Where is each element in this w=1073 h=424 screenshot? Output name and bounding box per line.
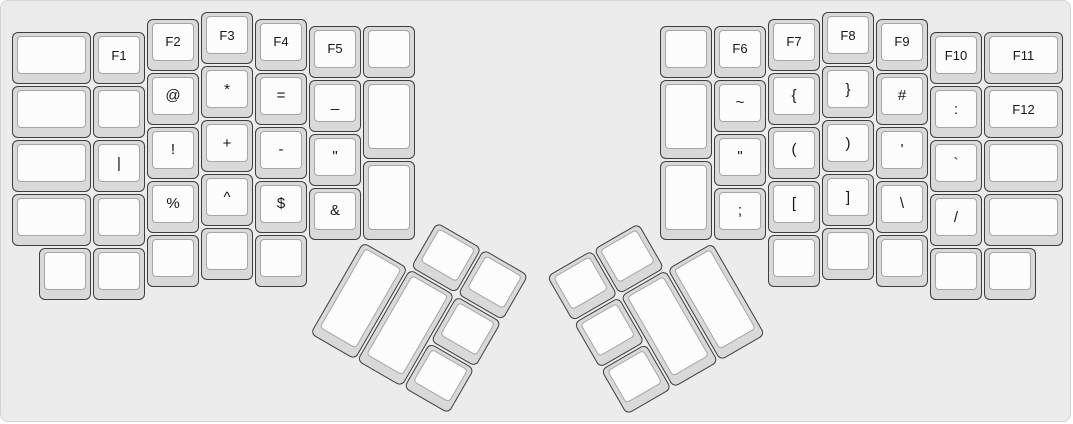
key-blank[interactable] bbox=[93, 248, 145, 300]
key-label: F11 bbox=[1013, 49, 1034, 62]
key-f1[interactable]: F1 bbox=[93, 32, 145, 84]
key-at[interactable]: @ bbox=[147, 73, 199, 125]
keycap-surface bbox=[600, 229, 655, 283]
key-label: % bbox=[166, 196, 179, 211]
key-label: ' bbox=[901, 142, 904, 157]
key-blank[interactable] bbox=[12, 32, 91, 84]
keycap-surface: F5 bbox=[314, 30, 356, 68]
key-label: ) bbox=[846, 136, 851, 151]
keycap-surface: F2 bbox=[152, 23, 194, 61]
key-f6[interactable]: F6 bbox=[714, 26, 766, 78]
keycap-surface: ) bbox=[827, 124, 869, 162]
key-f10[interactable]: F10 bbox=[930, 32, 982, 84]
key-blank[interactable] bbox=[147, 235, 199, 287]
key-label: F7 bbox=[786, 35, 801, 48]
key-tilde[interactable]: ~ bbox=[714, 80, 766, 132]
key-label: F1 bbox=[111, 49, 126, 62]
key-brace-close[interactable]: } bbox=[822, 66, 874, 118]
keycap-surface: ] bbox=[827, 178, 869, 216]
keycap-surface bbox=[665, 84, 707, 149]
key-equals[interactable]: = bbox=[255, 73, 307, 125]
keycap-surface bbox=[420, 228, 475, 282]
keycap-surface: F9 bbox=[881, 23, 923, 61]
key-blank[interactable] bbox=[12, 194, 91, 246]
keycap-surface: F11 bbox=[989, 36, 1058, 74]
key-blank[interactable] bbox=[768, 235, 820, 287]
key-label: F4 bbox=[273, 35, 288, 48]
keycap-surface bbox=[44, 252, 86, 290]
keycap-surface bbox=[368, 165, 410, 230]
keycap-surface bbox=[260, 239, 302, 277]
key-blank[interactable] bbox=[93, 86, 145, 138]
keycap-surface bbox=[665, 30, 707, 68]
key-label: F2 bbox=[165, 35, 180, 48]
keycap-surface: ! bbox=[152, 131, 194, 169]
key-label: ` bbox=[954, 156, 959, 171]
key-exclamation[interactable]: ! bbox=[147, 127, 199, 179]
key-label: ] bbox=[846, 190, 850, 205]
key-colon[interactable]: : bbox=[930, 86, 982, 138]
key-backtick[interactable]: ` bbox=[930, 140, 982, 192]
keycap-surface: F1 bbox=[98, 36, 140, 74]
key-blank[interactable] bbox=[876, 235, 928, 287]
keycap-surface: F6 bbox=[719, 30, 761, 68]
key-label: @ bbox=[165, 88, 180, 103]
key-label: " bbox=[332, 149, 337, 164]
key-blank[interactable] bbox=[660, 161, 712, 240]
key-f4[interactable]: F4 bbox=[255, 19, 307, 71]
key-label: " bbox=[737, 149, 742, 164]
key-label: F10 bbox=[945, 49, 967, 62]
keycap-surface: F10 bbox=[935, 36, 977, 74]
keycap-surface: " bbox=[719, 138, 761, 176]
keycap-surface: { bbox=[773, 77, 815, 115]
key-caret[interactable]: ^ bbox=[201, 174, 253, 226]
key-label: / bbox=[954, 210, 958, 225]
key-double-quote[interactable]: " bbox=[714, 134, 766, 186]
keycap-surface: ( bbox=[773, 131, 815, 169]
keycap-surface bbox=[368, 84, 410, 149]
keycap-surface: [ bbox=[773, 185, 815, 223]
key-label: F8 bbox=[840, 29, 855, 42]
key-underscore[interactable]: _ bbox=[309, 80, 361, 132]
keycap-surface: = bbox=[260, 77, 302, 115]
key-f5[interactable]: F5 bbox=[309, 26, 361, 78]
key-label: | bbox=[117, 156, 121, 171]
key-f9[interactable]: F9 bbox=[876, 19, 928, 71]
key-label: + bbox=[223, 136, 232, 151]
key-blank[interactable] bbox=[12, 140, 91, 192]
key-label: & bbox=[330, 203, 340, 218]
keycap-surface: & bbox=[314, 192, 356, 230]
key-blank[interactable] bbox=[255, 235, 307, 287]
keycap-surface bbox=[17, 90, 86, 128]
keycap-surface bbox=[665, 165, 707, 230]
key-label: F5 bbox=[327, 42, 342, 55]
key-slash[interactable]: / bbox=[930, 194, 982, 246]
key-label: * bbox=[224, 82, 230, 97]
keycap-surface bbox=[827, 232, 869, 270]
keycap-surface: @ bbox=[152, 77, 194, 115]
key-hash[interactable]: # bbox=[876, 73, 928, 125]
key-label: _ bbox=[331, 95, 339, 110]
key-label: F3 bbox=[219, 29, 234, 42]
key-ampersand[interactable]: & bbox=[309, 188, 361, 240]
key-bracket-close[interactable]: ] bbox=[822, 174, 874, 226]
key-label: F6 bbox=[732, 42, 747, 55]
keycap-surface bbox=[17, 198, 86, 236]
key-label: = bbox=[277, 88, 286, 103]
key-blank[interactable] bbox=[984, 248, 1036, 300]
keycap-surface bbox=[989, 144, 1058, 182]
key-blank[interactable] bbox=[984, 140, 1063, 192]
key-label: \ bbox=[900, 196, 904, 211]
key-plus[interactable]: + bbox=[201, 120, 253, 172]
key-blank[interactable] bbox=[363, 161, 415, 240]
key-label: } bbox=[845, 82, 850, 97]
key-label: ; bbox=[738, 203, 742, 218]
keycap-surface: + bbox=[206, 124, 248, 162]
keycap-surface bbox=[98, 198, 140, 236]
key-paren-open[interactable]: ( bbox=[768, 127, 820, 179]
keycap-surface bbox=[152, 239, 194, 277]
keycap-surface: ~ bbox=[719, 84, 761, 122]
key-f3[interactable]: F3 bbox=[201, 12, 253, 64]
keycap-surface: * bbox=[206, 70, 248, 108]
key-blank[interactable] bbox=[660, 26, 712, 78]
keycap-surface bbox=[553, 256, 608, 310]
key-dollar[interactable]: $ bbox=[255, 181, 307, 233]
key-double-quote[interactable]: " bbox=[309, 134, 361, 186]
keycap-surface: ^ bbox=[206, 178, 248, 216]
keycap-surface bbox=[98, 252, 140, 290]
key-blank[interactable] bbox=[984, 194, 1063, 246]
keycap-surface: \ bbox=[881, 185, 923, 223]
key-label: - bbox=[279, 142, 284, 157]
key-blank[interactable] bbox=[363, 80, 415, 159]
keycap-surface: F7 bbox=[773, 23, 815, 61]
key-label: $ bbox=[277, 196, 285, 211]
keycap-surface: _ bbox=[314, 84, 356, 122]
keycap-surface: - bbox=[260, 131, 302, 169]
keycap-surface bbox=[467, 255, 522, 309]
key-f2[interactable]: F2 bbox=[147, 19, 199, 71]
keycap-surface bbox=[368, 30, 410, 68]
keycap-surface: / bbox=[935, 198, 977, 236]
key-blank[interactable] bbox=[201, 228, 253, 280]
keycap-surface bbox=[773, 239, 815, 277]
keycap-surface: " bbox=[314, 138, 356, 176]
keycap-surface bbox=[206, 232, 248, 270]
keycap-surface bbox=[935, 252, 977, 290]
keycap-surface: | bbox=[98, 144, 140, 182]
keyboard-panel: F1F2F3F4F5@*=_|!+-"%^$&F6F7F8F9F10F11~{}… bbox=[0, 0, 1071, 422]
keycap-surface bbox=[989, 198, 1058, 236]
keycap-surface: ' bbox=[881, 131, 923, 169]
keycap-surface: ` bbox=[935, 144, 977, 182]
keycap-surface: F12 bbox=[989, 90, 1058, 128]
key-paren-close[interactable]: ) bbox=[822, 120, 874, 172]
key-asterisk[interactable]: * bbox=[201, 66, 253, 118]
key-f11[interactable]: F11 bbox=[984, 32, 1063, 84]
keycap-surface: $ bbox=[260, 185, 302, 223]
key-brace-open[interactable]: { bbox=[768, 73, 820, 125]
key-minus[interactable]: - bbox=[255, 127, 307, 179]
key-pipe[interactable]: | bbox=[93, 140, 145, 192]
key-label: [ bbox=[792, 196, 796, 211]
keycap-surface: F4 bbox=[260, 23, 302, 61]
keyboard-layout-view: F1F2F3F4F5@*=_|!+-"%^$&F6F7F8F9F10F11~{}… bbox=[0, 0, 1073, 424]
key-blank[interactable] bbox=[930, 248, 982, 300]
keycap-surface bbox=[17, 144, 86, 182]
key-label: F12 bbox=[1012, 103, 1034, 116]
key-f12[interactable]: F12 bbox=[984, 86, 1063, 138]
keycap-surface: # bbox=[881, 77, 923, 115]
key-blank[interactable] bbox=[822, 228, 874, 280]
key-semicolon[interactable]: ; bbox=[714, 188, 766, 240]
key-f7[interactable]: F7 bbox=[768, 19, 820, 71]
key-label: ~ bbox=[736, 95, 745, 110]
keycap-surface bbox=[98, 90, 140, 128]
keycap-surface bbox=[17, 36, 86, 74]
keycap-surface bbox=[989, 252, 1031, 290]
keycap-surface: : bbox=[935, 90, 977, 128]
key-f8[interactable]: F8 bbox=[822, 12, 874, 64]
key-blank[interactable] bbox=[39, 248, 91, 300]
key-blank[interactable] bbox=[660, 80, 712, 159]
key-label: ( bbox=[792, 142, 797, 157]
key-label: ^ bbox=[223, 190, 230, 205]
key-label: F9 bbox=[894, 35, 909, 48]
key-label: { bbox=[791, 88, 796, 103]
keycap-surface: F3 bbox=[206, 16, 248, 54]
key-blank[interactable] bbox=[363, 26, 415, 78]
keycap-surface: } bbox=[827, 70, 869, 108]
key-percent[interactable]: % bbox=[147, 181, 199, 233]
key-apostrophe[interactable]: ' bbox=[876, 127, 928, 179]
key-backslash[interactable]: \ bbox=[876, 181, 928, 233]
keycap-surface bbox=[881, 239, 923, 277]
key-label: ! bbox=[171, 142, 175, 157]
key-blank[interactable] bbox=[12, 86, 91, 138]
keycap-surface: ; bbox=[719, 192, 761, 230]
key-label: # bbox=[898, 88, 906, 103]
keycap-surface: % bbox=[152, 185, 194, 223]
key-label: : bbox=[954, 102, 958, 117]
keycap-surface: F8 bbox=[827, 16, 869, 54]
key-bracket-open[interactable]: [ bbox=[768, 181, 820, 233]
key-blank[interactable] bbox=[93, 194, 145, 246]
